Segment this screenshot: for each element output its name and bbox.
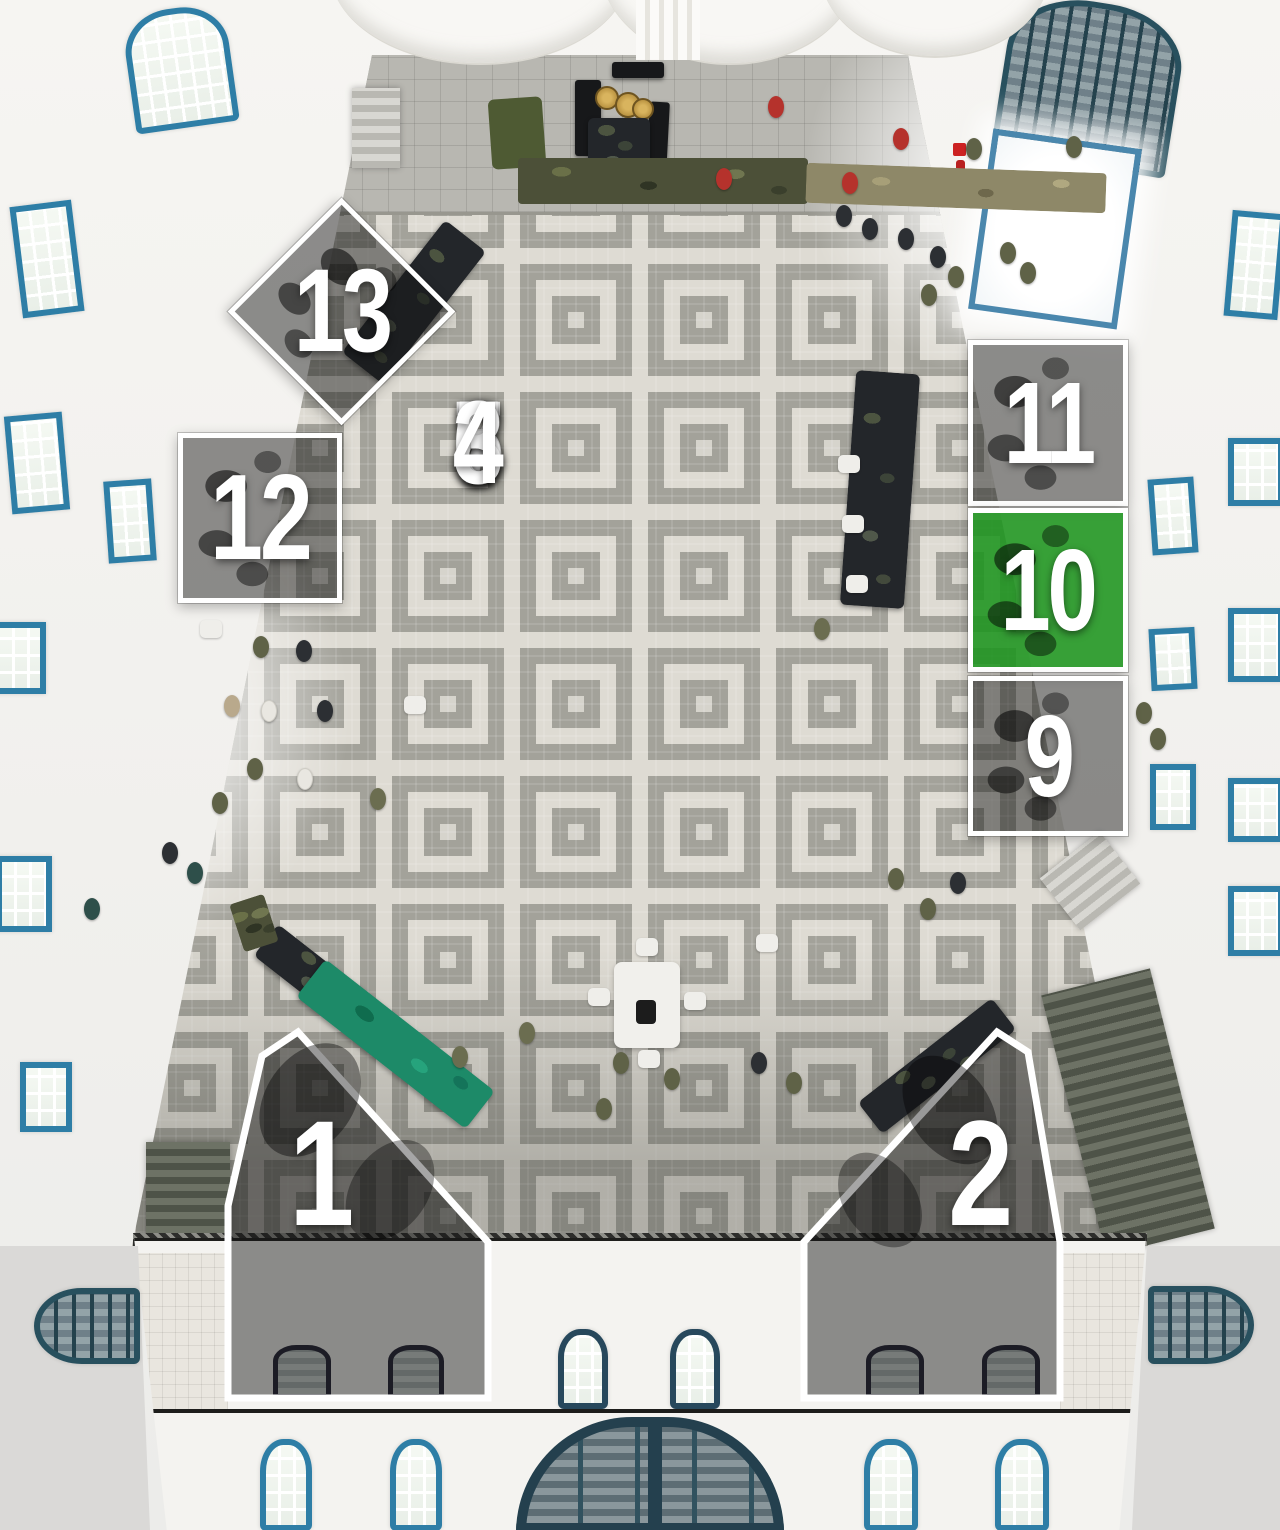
venue-map: 13 12 7 8 5 6 3 4 11 10 9 1 2 (0, 0, 1280, 1530)
region-10[interactable]: 10 (968, 508, 1128, 672)
region-11[interactable]: 11 (968, 340, 1128, 506)
region-grid: 7 8 5 6 3 4 (472, 438, 806, 930)
region-4[interactable]: 4 (472, 438, 482, 448)
region-9[interactable]: 9 (968, 676, 1128, 836)
region-12[interactable]: 12 (178, 433, 342, 603)
